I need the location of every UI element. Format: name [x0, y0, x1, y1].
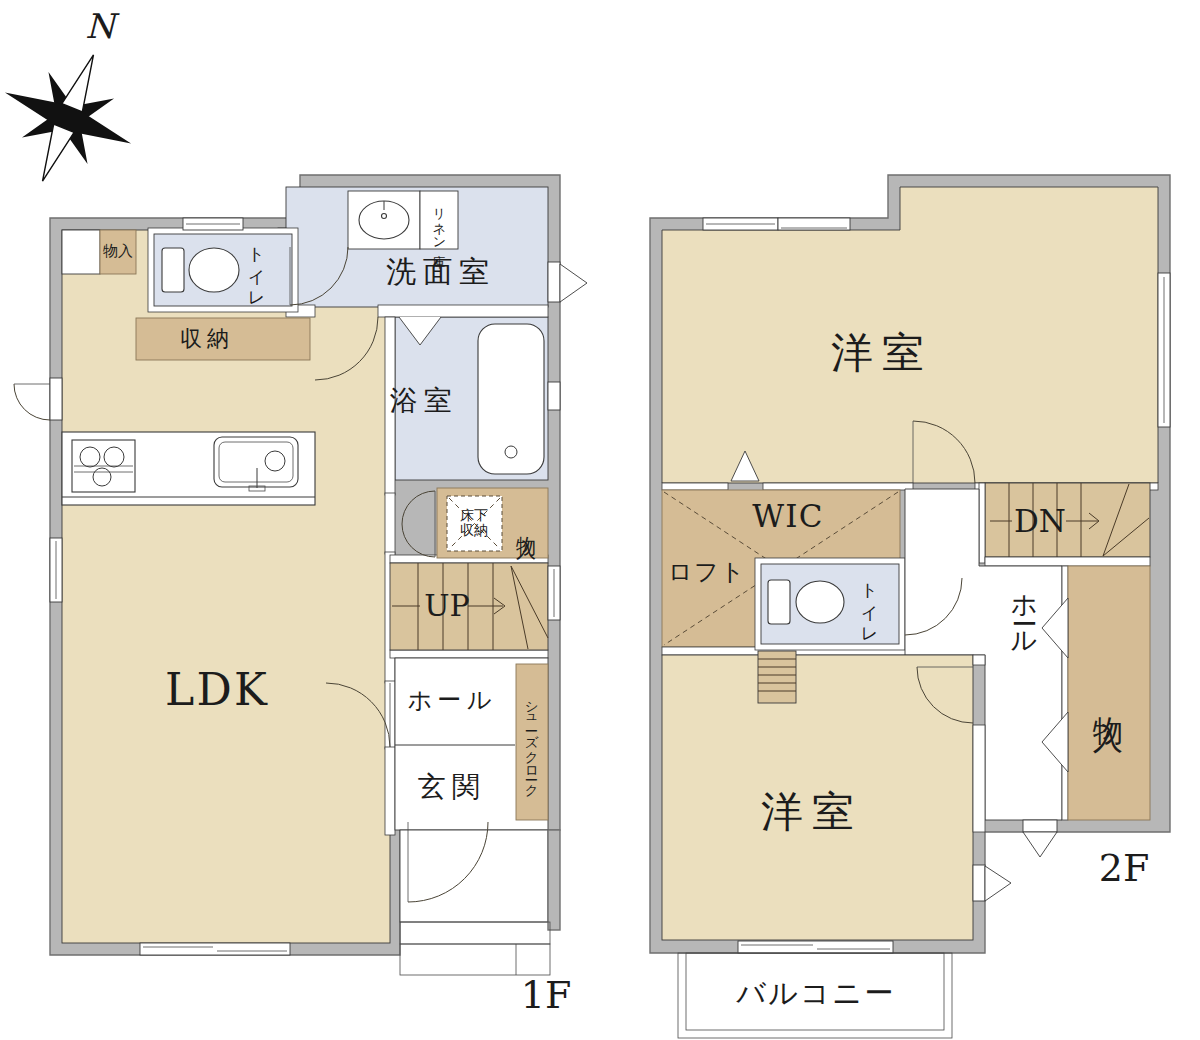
bathtub-icon: [478, 324, 544, 474]
toilet-icon: [768, 580, 844, 624]
compass-north-label: N: [85, 9, 115, 45]
toilet-room-1f: [148, 228, 298, 312]
room-label-washroom: 洗面室: [386, 256, 496, 288]
entry-nook: [62, 230, 100, 274]
room-label-linen-closet: リネン庫: [432, 198, 446, 243]
vanity-sink-icon: [348, 191, 420, 249]
stove-icon: [72, 440, 135, 492]
room-label-bedroom-upper: 洋室: [831, 331, 933, 375]
room-label-hall-1f: ホール: [408, 688, 497, 713]
room-label-bathroom: 浴室: [390, 386, 458, 415]
room-label-ldk: LDK: [165, 667, 269, 713]
room-label-wic: WIC: [752, 500, 824, 533]
sink-icon: [214, 437, 298, 491]
toilet-icon: [162, 248, 239, 292]
room-label-storage-1f: 物入: [516, 520, 537, 526]
kitchen-counter: [62, 432, 315, 505]
room-label-storage-nook-1f: 物入: [103, 244, 133, 260]
room-label-closet-1f: 収納: [180, 327, 234, 350]
room-label-underfloor-storage: 床下 収納: [460, 508, 488, 537]
room-label-storage-2f: 物入: [1092, 694, 1124, 703]
underfloor-storage-line2: 収納: [460, 523, 488, 538]
underfloor-storage-line1: 床下: [460, 508, 488, 523]
stairs-label-up: UP: [424, 590, 469, 622]
floor2-plan: [650, 175, 1170, 1038]
floor2-label: 2F: [1099, 849, 1150, 889]
floor-plan-page: N LDK 物入 トイレ 収納 洗面室 リネン庫 浴室 床下 収納 物入 UP …: [0, 0, 1200, 1040]
entrance-porch: [400, 822, 560, 975]
room-label-entrance: 玄関: [418, 772, 486, 801]
toilet-room-2f: [755, 558, 905, 650]
room-label-shoe-closet: シューズクローク: [525, 692, 539, 790]
room-label-bedroom-lower: 洋室: [761, 790, 863, 834]
compass-icon: [0, 26, 160, 210]
floor1-plan: [14, 175, 587, 975]
loft-ladder-icon: [758, 651, 796, 703]
room-label-balcony: バルコニー: [736, 978, 895, 1008]
room-label-hall-2f: ホール: [1010, 577, 1037, 648]
stairs-label-dn: DN: [1014, 505, 1066, 538]
room-label-toilet-2f: トイレ: [860, 571, 878, 637]
room-label-loft: ロフト: [668, 560, 745, 585]
room-label-toilet-1f: トイレ: [247, 235, 265, 301]
floor1-label: 1F: [521, 976, 572, 1016]
